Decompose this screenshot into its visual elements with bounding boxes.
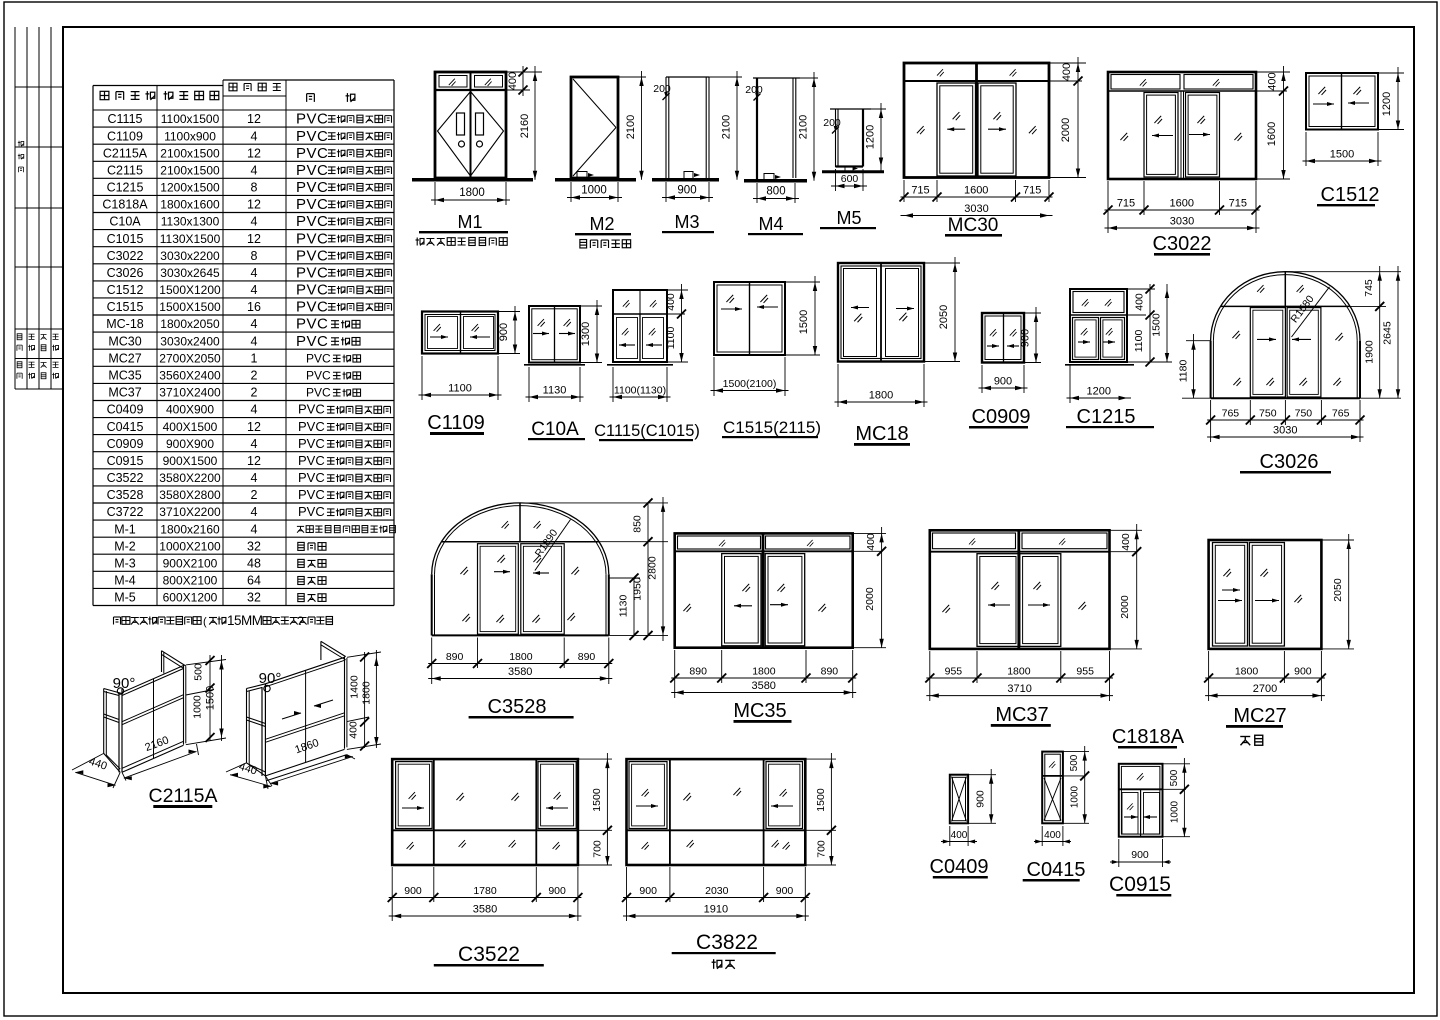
- svg-text:1100x900: 1100x900: [164, 129, 216, 143]
- svg-text:1800: 1800: [869, 390, 893, 402]
- svg-text:500: 500: [1169, 769, 1180, 786]
- svg-text:900: 900: [1131, 849, 1149, 861]
- svg-text:4: 4: [251, 437, 258, 451]
- svg-text:750: 750: [1295, 408, 1313, 420]
- svg-text:PVC: PVC: [296, 128, 328, 145]
- svg-text:4: 4: [251, 129, 258, 143]
- svg-text:C3522: C3522: [458, 943, 520, 966]
- svg-text:C2115A: C2115A: [148, 785, 217, 807]
- svg-text:PVC: PVC: [298, 419, 325, 434]
- svg-text:C3822: C3822: [696, 931, 758, 954]
- svg-text:1180: 1180: [1178, 360, 1190, 383]
- svg-text:2100: 2100: [625, 115, 637, 139]
- svg-text:PVC: PVC: [296, 145, 328, 162]
- svg-text:4: 4: [251, 215, 258, 229]
- svg-text:1500: 1500: [205, 686, 217, 710]
- svg-text:1600: 1600: [1266, 122, 1278, 146]
- svg-text:400X900: 400X900: [166, 403, 214, 417]
- svg-text:C1109: C1109: [427, 412, 484, 434]
- svg-text:400: 400: [1267, 72, 1279, 90]
- svg-text:1500X1200: 1500X1200: [159, 283, 221, 297]
- svg-text:765: 765: [1222, 408, 1240, 420]
- svg-text:C2115A: C2115A: [103, 146, 148, 160]
- svg-text:MC18: MC18: [855, 423, 908, 445]
- svg-text:1130: 1130: [543, 385, 567, 397]
- svg-text:MC30: MC30: [948, 215, 999, 236]
- svg-text:4: 4: [251, 164, 258, 178]
- svg-text:900: 900: [639, 885, 657, 897]
- svg-text:1800: 1800: [1235, 666, 1259, 678]
- svg-text:1800: 1800: [752, 666, 776, 678]
- svg-text:M4: M4: [758, 214, 783, 234]
- svg-text:3560X2400: 3560X2400: [159, 369, 221, 383]
- svg-text:1800x2050: 1800x2050: [160, 317, 220, 331]
- svg-text:C3522: C3522: [107, 471, 144, 485]
- svg-text:PVC: PVC: [298, 487, 325, 502]
- svg-text:12: 12: [247, 112, 261, 126]
- svg-text:C1215: C1215: [1077, 406, 1136, 428]
- svg-text:900: 900: [1020, 329, 1032, 347]
- svg-text:C1512: C1512: [107, 283, 144, 297]
- svg-text:890: 890: [689, 666, 707, 678]
- svg-text:2645: 2645: [1382, 321, 1394, 345]
- svg-text:400X1500: 400X1500: [163, 420, 218, 434]
- svg-text:32: 32: [247, 539, 261, 553]
- svg-text:C1515: C1515: [107, 300, 144, 314]
- svg-text:3580X2800: 3580X2800: [159, 488, 221, 502]
- svg-text:715: 715: [1023, 185, 1041, 197]
- svg-text:PVC: PVC: [296, 230, 328, 247]
- svg-text:900X2100: 900X2100: [163, 556, 218, 570]
- svg-text:4: 4: [251, 403, 258, 417]
- svg-text:1800x1600: 1800x1600: [160, 198, 220, 212]
- svg-text:800: 800: [766, 186, 785, 198]
- svg-text:1910: 1910: [704, 904, 728, 916]
- svg-text:C0909: C0909: [972, 406, 1031, 428]
- svg-text:2: 2: [251, 488, 258, 502]
- svg-text:1000: 1000: [581, 185, 607, 197]
- svg-text:PVC: PVC: [296, 333, 328, 350]
- svg-text:M-4: M-4: [114, 574, 136, 588]
- svg-text:890: 890: [446, 651, 464, 663]
- svg-text:4: 4: [251, 522, 258, 536]
- svg-text:715: 715: [1117, 198, 1135, 210]
- svg-text:1600: 1600: [964, 185, 988, 197]
- svg-text:PVC: PVC: [296, 316, 328, 333]
- svg-text:3710X2400: 3710X2400: [159, 386, 221, 400]
- svg-text:M-3: M-3: [114, 556, 136, 570]
- svg-text:12: 12: [247, 232, 261, 246]
- svg-text:(: (: [203, 616, 207, 628]
- svg-text:400: 400: [348, 721, 360, 739]
- svg-text:1130: 1130: [618, 595, 630, 618]
- svg-text:2100: 2100: [721, 115, 733, 139]
- svg-text:4: 4: [251, 266, 258, 280]
- svg-text:1130x1300: 1130x1300: [161, 215, 220, 229]
- svg-text:1500: 1500: [798, 310, 810, 334]
- svg-text:1800: 1800: [509, 651, 533, 663]
- svg-text:90°: 90°: [113, 675, 136, 692]
- svg-text:400: 400: [865, 533, 877, 551]
- svg-text:1800: 1800: [361, 681, 373, 705]
- svg-text:M-5: M-5: [114, 591, 136, 605]
- svg-text:1000: 1000: [192, 695, 204, 719]
- svg-text:400: 400: [507, 72, 519, 90]
- svg-text:1200: 1200: [865, 125, 877, 149]
- svg-text:1500X1500: 1500X1500: [159, 300, 221, 314]
- svg-text:3030: 3030: [964, 203, 988, 215]
- svg-text:890: 890: [821, 666, 839, 678]
- svg-text:900: 900: [404, 885, 422, 897]
- svg-text:M-2: M-2: [114, 539, 136, 553]
- svg-text:600X1200: 600X1200: [163, 591, 218, 605]
- svg-text:2160: 2160: [519, 114, 531, 138]
- svg-text:3710X2200: 3710X2200: [159, 505, 221, 519]
- svg-text:C1115: C1115: [108, 112, 143, 126]
- svg-text:850: 850: [632, 515, 644, 533]
- svg-text:3030x2400: 3030x2400: [160, 334, 220, 348]
- svg-text:1800x2160: 1800x2160: [160, 522, 220, 536]
- svg-text:1300: 1300: [580, 322, 592, 346]
- svg-text:955: 955: [1076, 666, 1094, 678]
- svg-text:400: 400: [665, 293, 677, 311]
- svg-text:?: ?: [297, 614, 304, 628]
- svg-text:2000: 2000: [864, 587, 876, 611]
- svg-text:PVC: PVC: [296, 247, 328, 264]
- svg-text:MC37: MC37: [108, 386, 141, 400]
- svg-text:4: 4: [251, 317, 258, 331]
- svg-text:400: 400: [1061, 63, 1073, 81]
- svg-text:PVC: PVC: [296, 299, 328, 316]
- svg-text:MC27: MC27: [108, 351, 141, 365]
- svg-text:2050: 2050: [1332, 578, 1344, 602]
- svg-text:PVC: PVC: [298, 504, 325, 519]
- svg-text:MC37: MC37: [995, 704, 1048, 726]
- svg-text:C3026: C3026: [1260, 451, 1319, 473]
- svg-text:900: 900: [994, 376, 1012, 388]
- svg-text:C0409: C0409: [107, 403, 144, 417]
- svg-text:64: 64: [247, 574, 261, 588]
- svg-text:MC35: MC35: [108, 369, 141, 383]
- svg-text:PVC: PVC: [306, 351, 331, 365]
- svg-text:765: 765: [1332, 408, 1350, 420]
- svg-text:500: 500: [193, 663, 205, 681]
- svg-text:48: 48: [247, 556, 261, 570]
- svg-text:M1: M1: [457, 212, 482, 232]
- svg-text:2100x1500: 2100x1500: [160, 164, 220, 178]
- svg-text:C3528: C3528: [107, 488, 144, 502]
- svg-text:400: 400: [1134, 293, 1146, 311]
- svg-text:C1215: C1215: [107, 181, 144, 195]
- svg-text:200: 200: [653, 83, 671, 95]
- svg-text:C3722: C3722: [107, 505, 144, 519]
- svg-text:900: 900: [776, 885, 794, 897]
- svg-text:C10A: C10A: [109, 215, 141, 229]
- svg-text:C1115(C1015): C1115(C1015): [594, 422, 700, 440]
- svg-text:15MM: 15MM: [227, 613, 263, 628]
- svg-text:750: 750: [1259, 408, 1277, 420]
- svg-text:2050: 2050: [938, 305, 950, 329]
- svg-text:C3022: C3022: [107, 249, 144, 263]
- svg-text:C1015: C1015: [107, 232, 144, 246]
- svg-text:2030: 2030: [705, 885, 729, 897]
- svg-text:1200x1500: 1200x1500: [160, 181, 220, 195]
- svg-text:PVC: PVC: [306, 386, 331, 400]
- svg-text:12: 12: [247, 146, 261, 160]
- svg-text:M2: M2: [589, 214, 614, 234]
- svg-text:MC35: MC35: [733, 700, 786, 722]
- svg-text:PVC: PVC: [298, 436, 325, 451]
- svg-text:600: 600: [841, 173, 859, 185]
- svg-text:1000X2100: 1000X2100: [159, 539, 221, 553]
- svg-text:900: 900: [1294, 666, 1312, 678]
- svg-text:C1515(2115): C1515(2115): [723, 418, 821, 437]
- svg-text:3580: 3580: [473, 904, 497, 916]
- svg-text:2: 2: [251, 386, 258, 400]
- svg-text:1100: 1100: [665, 327, 677, 350]
- svg-text:1000: 1000: [1170, 800, 1181, 823]
- svg-text:C3528: C3528: [488, 696, 547, 718]
- svg-text:3580: 3580: [751, 680, 775, 692]
- svg-text:PVC: PVC: [296, 162, 328, 179]
- svg-text:1500: 1500: [1151, 313, 1163, 337]
- svg-text:900: 900: [677, 185, 696, 197]
- svg-text:1500: 1500: [591, 788, 603, 812]
- svg-text:1100x1500: 1100x1500: [161, 112, 220, 126]
- svg-text:900: 900: [975, 790, 987, 808]
- svg-text:2: 2: [251, 369, 258, 383]
- svg-text:700: 700: [592, 840, 604, 858]
- svg-text:C10A: C10A: [531, 419, 579, 440]
- svg-text:1780: 1780: [473, 885, 497, 897]
- svg-text:1100: 1100: [1133, 330, 1145, 353]
- svg-text:4: 4: [251, 283, 258, 297]
- svg-text:1600: 1600: [1170, 198, 1194, 210]
- svg-text:400: 400: [1044, 830, 1061, 841]
- svg-text:C1818A: C1818A: [102, 198, 148, 212]
- svg-text:1900: 1900: [1364, 340, 1376, 364]
- svg-text:2700: 2700: [1253, 683, 1277, 695]
- svg-text:MC-18: MC-18: [106, 317, 144, 331]
- svg-text:800X2100: 800X2100: [163, 574, 218, 588]
- svg-text:900: 900: [498, 323, 510, 341]
- svg-text:C0415: C0415: [107, 420, 144, 434]
- svg-text:890: 890: [578, 651, 596, 663]
- svg-text:1950: 1950: [632, 577, 644, 601]
- svg-text:715: 715: [1229, 198, 1247, 210]
- svg-text:90°: 90°: [259, 670, 282, 687]
- svg-text:3710: 3710: [1007, 683, 1031, 695]
- svg-text:1: 1: [251, 351, 258, 365]
- svg-text:C0915: C0915: [107, 454, 144, 468]
- svg-text:8: 8: [251, 181, 258, 195]
- svg-text:2100x1500: 2100x1500: [160, 146, 220, 160]
- svg-text:1500(2100): 1500(2100): [723, 378, 777, 390]
- svg-text:MC30: MC30: [108, 334, 141, 348]
- svg-text:400: 400: [1120, 533, 1132, 551]
- svg-text:955: 955: [945, 666, 963, 678]
- svg-text:C3022: C3022: [1153, 233, 1212, 255]
- svg-text:C0915: C0915: [1109, 873, 1171, 896]
- svg-text:400: 400: [951, 830, 968, 841]
- svg-text:8: 8: [251, 249, 258, 263]
- svg-text:1200: 1200: [1087, 386, 1111, 398]
- svg-text:12: 12: [247, 198, 261, 212]
- svg-text:900: 900: [548, 885, 566, 897]
- svg-text:M5: M5: [836, 208, 861, 228]
- svg-text:16: 16: [247, 300, 261, 314]
- svg-text:3030x2200: 3030x2200: [160, 249, 220, 263]
- svg-text:PVC: PVC: [298, 470, 325, 485]
- svg-text:PVC: PVC: [296, 179, 328, 196]
- svg-text:PVC: PVC: [298, 402, 325, 417]
- svg-text:PVC: PVC: [296, 111, 328, 128]
- svg-text:2000: 2000: [1060, 118, 1072, 142]
- svg-text:4: 4: [251, 505, 258, 519]
- svg-text:1100: 1100: [448, 383, 472, 395]
- svg-text:C1818A: C1818A: [1112, 726, 1185, 748]
- svg-text:MC27: MC27: [1233, 705, 1286, 727]
- svg-text:3030: 3030: [1273, 425, 1297, 437]
- svg-text:C0415: C0415: [1027, 859, 1086, 881]
- svg-text:2700X2050: 2700X2050: [159, 351, 221, 365]
- svg-text:1500: 1500: [815, 788, 827, 812]
- svg-text:1800: 1800: [459, 187, 485, 199]
- svg-text:3580X2200: 3580X2200: [159, 471, 221, 485]
- svg-text:1800: 1800: [1007, 666, 1031, 678]
- svg-text:3580: 3580: [508, 666, 532, 678]
- svg-text:4: 4: [251, 471, 258, 485]
- svg-text:4: 4: [251, 334, 258, 348]
- svg-text:745: 745: [1363, 279, 1375, 297]
- svg-text:C1109: C1109: [107, 129, 143, 143]
- svg-text:700: 700: [816, 840, 828, 858]
- svg-text:M-1: M-1: [114, 522, 136, 536]
- svg-text:1000: 1000: [1070, 785, 1081, 808]
- svg-text:C0909: C0909: [107, 437, 144, 451]
- svg-text:12: 12: [247, 420, 261, 434]
- svg-text:1400: 1400: [349, 675, 361, 699]
- svg-text:1100(1130): 1100(1130): [614, 385, 666, 397]
- svg-text:3030x2645: 3030x2645: [160, 266, 220, 280]
- svg-text:C2115: C2115: [107, 164, 143, 178]
- svg-text:500: 500: [1069, 754, 1080, 771]
- svg-text:C3026: C3026: [107, 266, 144, 280]
- svg-text:M3: M3: [674, 212, 699, 232]
- svg-text:12: 12: [247, 454, 261, 468]
- svg-text:1130X1500: 1130X1500: [160, 232, 221, 246]
- svg-text:1500: 1500: [1330, 149, 1354, 161]
- svg-text:32: 32: [247, 591, 261, 605]
- svg-text:PVC: PVC: [296, 282, 328, 299]
- svg-text:900X1500: 900X1500: [163, 454, 218, 468]
- svg-text:PVC: PVC: [296, 213, 328, 230]
- svg-text:3030: 3030: [1170, 216, 1194, 228]
- svg-text:PVC: PVC: [298, 453, 325, 468]
- svg-text:PVC: PVC: [306, 369, 331, 383]
- svg-text:PVC: PVC: [296, 196, 328, 213]
- svg-text:1200: 1200: [1381, 92, 1393, 116]
- svg-text:715: 715: [911, 185, 929, 197]
- svg-text:2800: 2800: [647, 556, 659, 580]
- svg-text:C1512: C1512: [1321, 184, 1380, 206]
- svg-text:PVC: PVC: [296, 265, 328, 282]
- svg-text:2100: 2100: [798, 115, 810, 139]
- svg-text:900X900: 900X900: [166, 437, 214, 451]
- svg-text:2000: 2000: [1119, 595, 1131, 619]
- svg-text:C0409: C0409: [930, 856, 989, 878]
